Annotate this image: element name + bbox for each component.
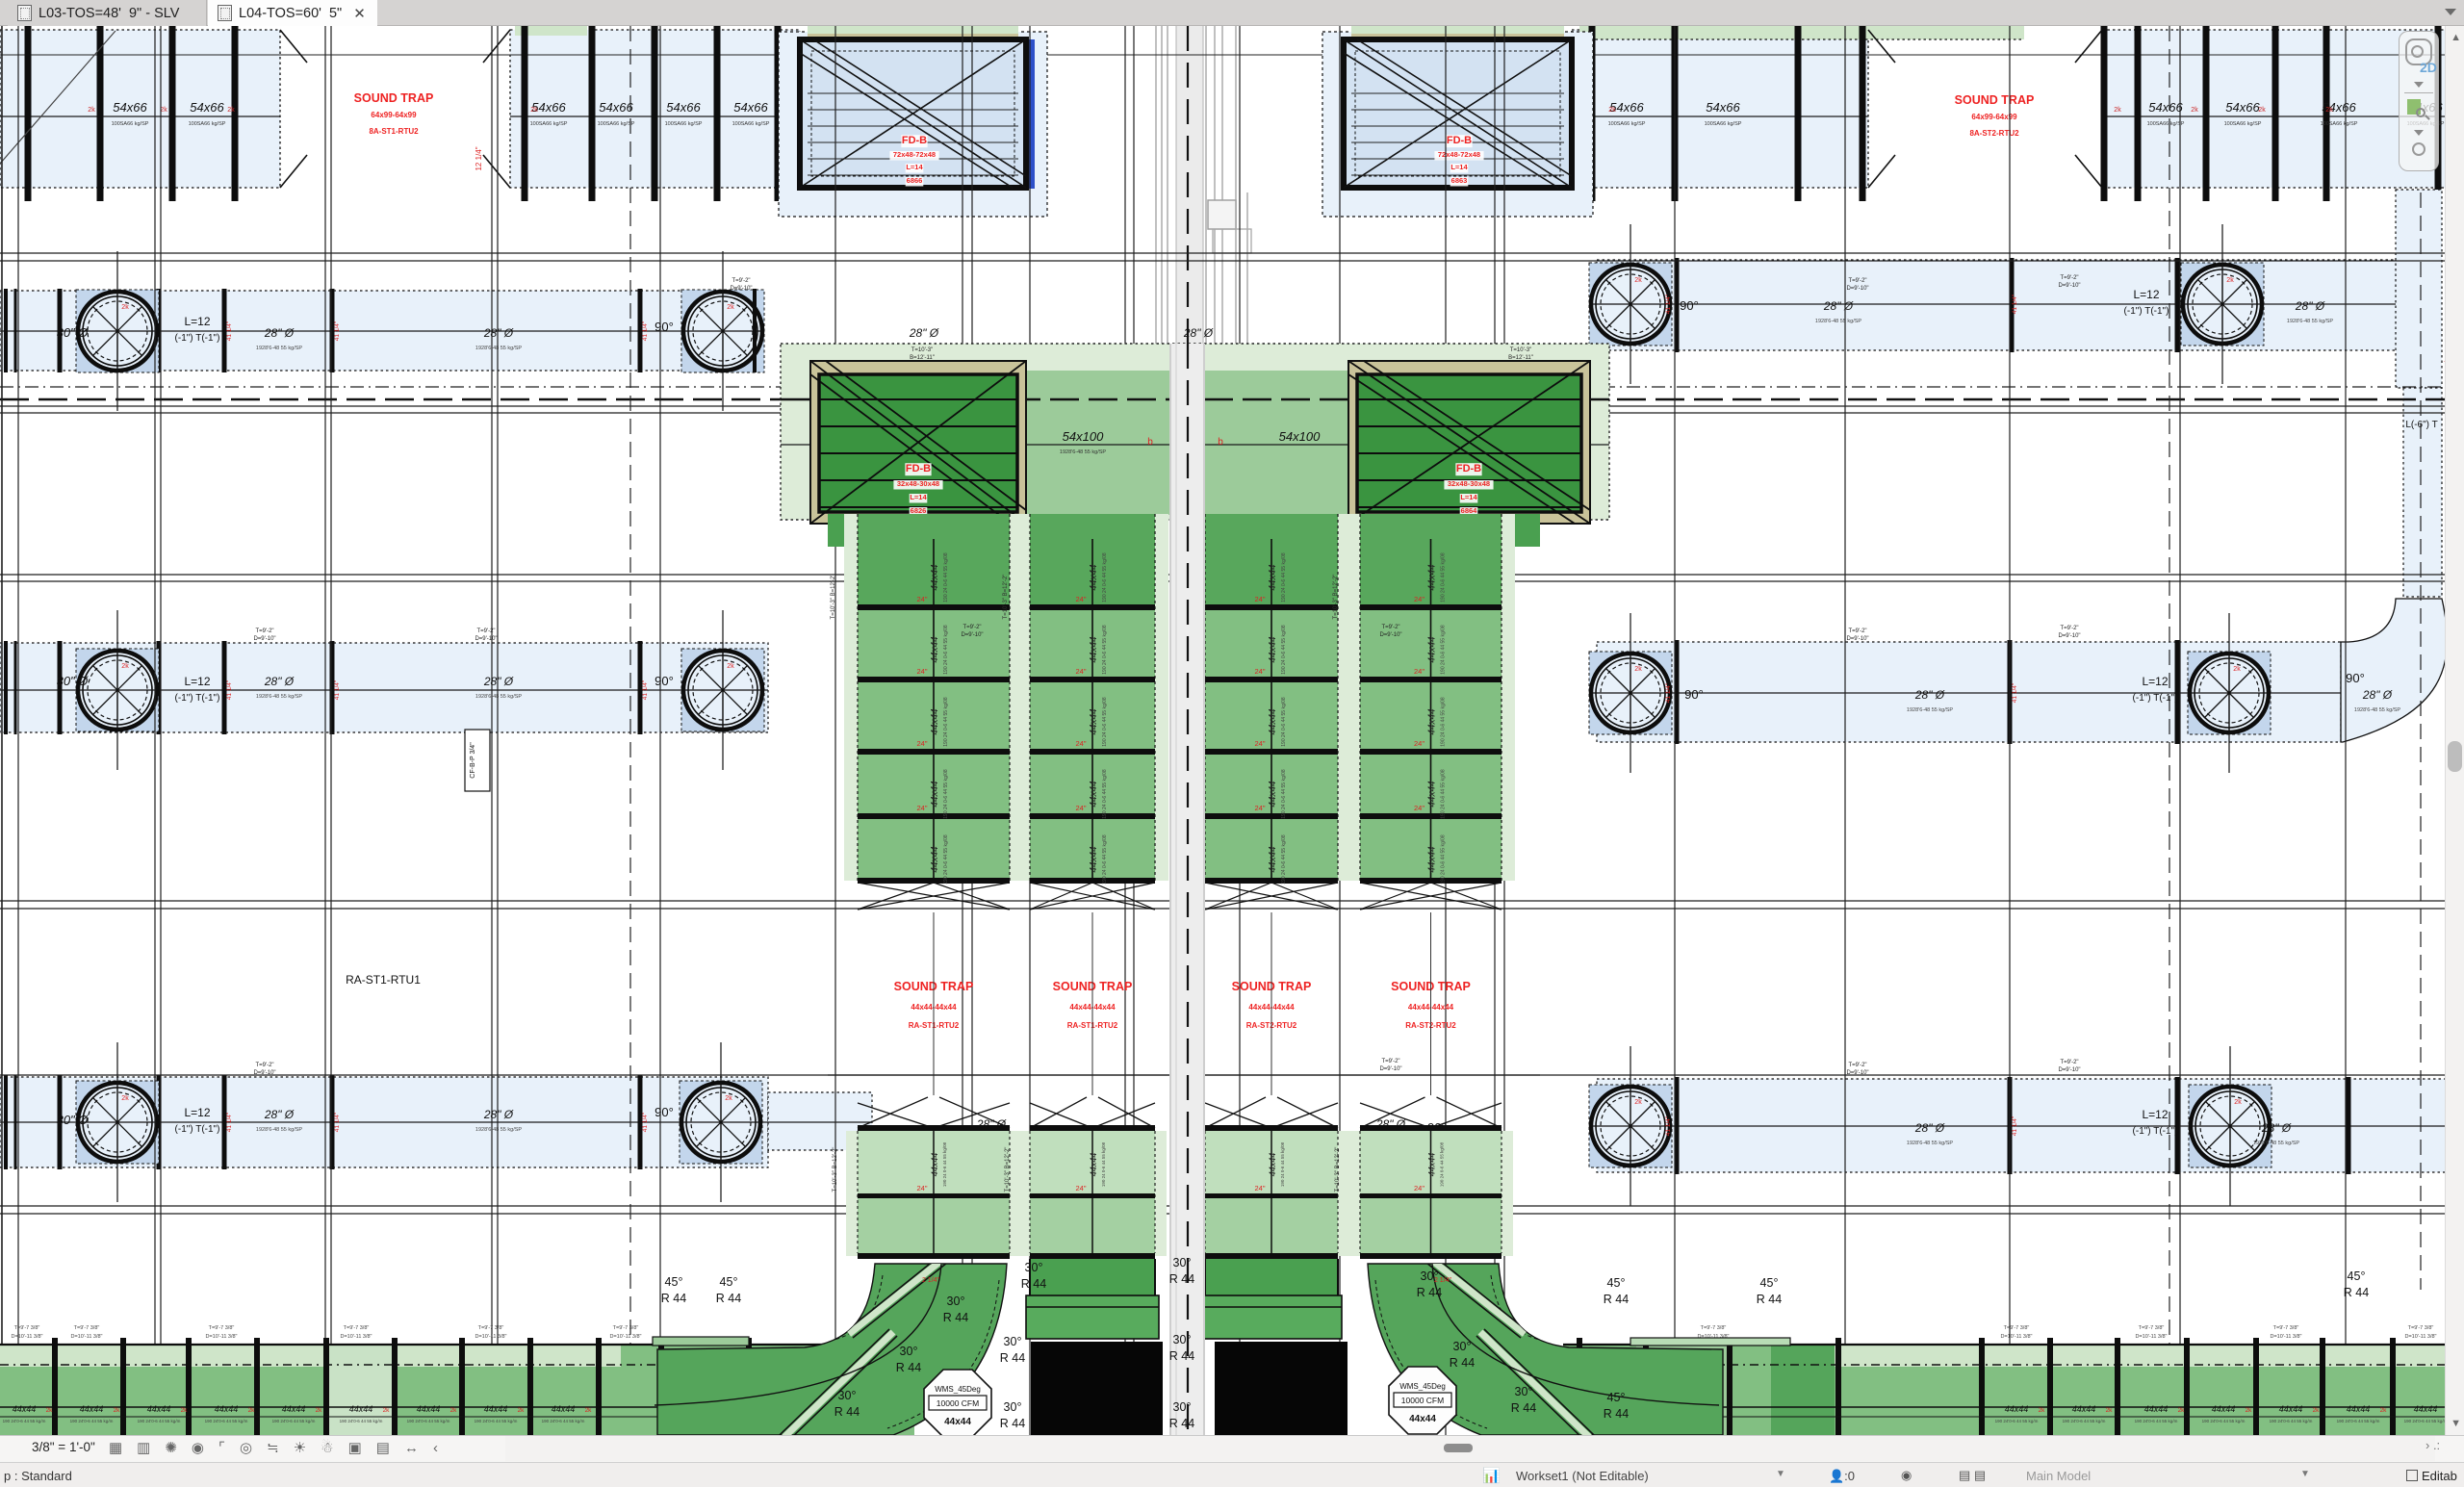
- svg-text:190 24'0-6 44 55 kg/m: 190 24'0-6 44 55 kg/m: [70, 1419, 114, 1423]
- svg-text:24": 24": [1254, 667, 1265, 676]
- svg-text:41 1/4": 41 1/4": [334, 320, 341, 341]
- svg-text:24": 24": [916, 739, 927, 748]
- svg-text:T=9'-2": T=9'-2": [2060, 626, 2078, 631]
- svg-text:190 24'0-6 44 55 kg/m: 190 24'0-6 44 55 kg/m: [2270, 1419, 2313, 1423]
- svg-text:2k: 2k: [450, 1407, 458, 1414]
- svg-text:190 24 0-6 44 55 kg/08: 190 24 0-6 44 55 kg/08: [1102, 697, 1108, 747]
- svg-text:64x99-64x99: 64x99-64x99: [371, 111, 417, 119]
- svg-text:45°: 45°: [1760, 1276, 1779, 1290]
- svg-text:28" Ø: 28" Ø: [264, 675, 295, 688]
- svg-text:10000 CFM: 10000 CFM: [937, 1398, 979, 1408]
- svg-text:30" Ø: 30" Ø: [57, 674, 90, 688]
- svg-text:2k: 2k: [2380, 1407, 2388, 1414]
- svg-text:T=9'-7 3/8": T=9'-7 3/8": [1701, 1325, 1727, 1331]
- svg-text:SOUND TRAP: SOUND TRAP: [1955, 93, 2035, 107]
- svg-text:190 24 0-6 44 55 kg/08: 190 24 0-6 44 55 kg/08: [1280, 1141, 1285, 1187]
- svg-text:D=9'-10": D=9'-10": [730, 286, 752, 292]
- svg-text:D=9'-10": D=9'-10": [961, 632, 983, 638]
- svg-text:44x44: 44x44: [2212, 1404, 2236, 1414]
- svg-text:6863: 6863: [1451, 176, 1468, 185]
- svg-text:1928'6-48 55 kg/SP: 1928'6-48 55 kg/SP: [1907, 707, 1953, 713]
- svg-text:D=10'-11 3/8": D=10'-11 3/8": [11, 1334, 42, 1340]
- svg-text:41 1/4": 41 1/4": [226, 320, 233, 341]
- svg-text:100SA66 kg/SP: 100SA66 kg/SP: [189, 121, 226, 127]
- svg-text:R 44: R 44: [661, 1292, 686, 1305]
- svg-text:44x44: 44x44: [930, 1153, 939, 1177]
- svg-text:RA-ST1-RTU1: RA-ST1-RTU1: [346, 973, 421, 987]
- svg-text:44x44: 44x44: [1427, 708, 1438, 735]
- svg-text:28" Ø: 28" Ø: [2362, 688, 2393, 702]
- svg-text:24": 24": [1254, 1184, 1265, 1192]
- svg-text:D=9'-10": D=9'-10": [1379, 1066, 1401, 1072]
- svg-text:T=9'-2": T=9'-2": [476, 628, 495, 634]
- svg-text:T=9'-2": T=9'-2": [962, 625, 981, 630]
- svg-text:1928'6-48 55 kg/SP: 1928'6-48 55 kg/SP: [475, 346, 522, 351]
- svg-text:28" Ø: 28" Ø: [264, 326, 295, 340]
- svg-text:SOUND TRAP: SOUND TRAP: [354, 91, 434, 105]
- svg-text:41 1/4": 41 1/4": [1665, 294, 1672, 314]
- svg-text:44x44: 44x44: [2005, 1404, 2029, 1414]
- svg-text:24": 24": [1414, 739, 1424, 748]
- svg-text:30°: 30°: [900, 1345, 918, 1358]
- svg-text:2k: 2k: [1608, 107, 1616, 114]
- svg-text:190 24 0-6 44 55 kg/08: 190 24 0-6 44 55 kg/08: [1102, 625, 1108, 675]
- svg-text:45°: 45°: [1607, 1391, 1626, 1404]
- svg-text:L=14: L=14: [1450, 163, 1468, 171]
- svg-text:T=9'-2": T=9'-2": [1848, 1063, 1866, 1068]
- svg-text:24": 24": [916, 804, 927, 812]
- svg-text:2k: 2k: [121, 304, 129, 311]
- svg-text:44x44: 44x44: [282, 1404, 306, 1414]
- svg-text:(-1") T(-1"): (-1") T(-1"): [175, 333, 220, 344]
- svg-text:2k: 2k: [383, 1407, 391, 1414]
- svg-text:B=12'-11": B=12'-11": [1508, 355, 1533, 361]
- svg-text:44x44: 44x44: [1427, 846, 1438, 873]
- svg-text:D=9'-10": D=9'-10": [475, 636, 497, 642]
- svg-text:D=10'-11 3/8": D=10'-11 3/8": [2270, 1334, 2301, 1340]
- svg-text:190 24 0-6 44 55 kg/08: 190 24 0-6 44 55 kg/08: [1441, 625, 1447, 675]
- svg-text:T=9'-2": T=9'-2": [1381, 625, 1399, 630]
- svg-text:41 1/4": 41 1/4": [1665, 1115, 1672, 1136]
- svg-text:T=10'-3" B=12'-2": T=10'-3" B=12'-2": [1335, 1147, 1341, 1192]
- svg-text:190 24 0-6 44 55 kg/08: 190 24 0-6 44 55 kg/08: [943, 697, 949, 747]
- svg-text:41 1/4": 41 1/4": [226, 679, 233, 700]
- svg-text:T=10'-3" B=12'-2": T=10'-3" B=12'-2": [1005, 1147, 1011, 1192]
- svg-text:54x66: 54x66: [599, 100, 633, 115]
- svg-text:190 24 0-6 44 55 kg/08: 190 24 0-6 44 55 kg/08: [1281, 834, 1287, 885]
- svg-text:190 24'0-6 44 55 kg/m: 190 24'0-6 44 55 kg/m: [542, 1419, 585, 1423]
- svg-text:44x44: 44x44: [1089, 1153, 1098, 1177]
- svg-text:28" Ø: 28" Ø: [483, 675, 514, 688]
- svg-text:2k: 2k: [114, 1407, 121, 1414]
- svg-text:32x48-30x48: 32x48-30x48: [1448, 479, 1490, 488]
- svg-text:30°: 30°: [1453, 1340, 1472, 1353]
- svg-text:R 44: R 44: [1021, 1277, 1046, 1291]
- svg-text:190 24 0-6 44 55 kg/08: 190 24 0-6 44 55 kg/08: [1102, 834, 1108, 885]
- svg-text:2k: 2k: [530, 107, 538, 114]
- svg-text:2k: 2k: [2178, 1407, 2186, 1414]
- svg-text:2 1/4": 2 1/4": [922, 1277, 940, 1284]
- svg-text:T=9'-2": T=9'-2": [255, 1063, 273, 1068]
- svg-text:190 24'0-6 44 55 kg/m: 190 24'0-6 44 55 kg/m: [475, 1419, 518, 1423]
- svg-text:90°: 90°: [2346, 671, 2365, 685]
- svg-text:24": 24": [1414, 667, 1424, 676]
- svg-text:D=10'-11 3/8": D=10'-11 3/8": [609, 1334, 641, 1340]
- svg-text:44x44: 44x44: [930, 781, 940, 808]
- svg-text:100SA66 kg/SP: 100SA66 kg/SP: [598, 121, 635, 127]
- svg-text:D=9'-10": D=9'-10": [1846, 286, 1868, 292]
- svg-text:41 1/4": 41 1/4": [2012, 682, 2018, 703]
- svg-text:D=9'-10": D=9'-10": [253, 636, 275, 642]
- svg-text:R 44: R 44: [1511, 1401, 1536, 1415]
- svg-text:b: b: [1218, 437, 1223, 448]
- svg-text:2k: 2k: [2233, 666, 2241, 673]
- svg-text:41 1/4": 41 1/4": [334, 1112, 341, 1132]
- svg-text:190 24 0-6 44 55 kg/08: 190 24 0-6 44 55 kg/08: [1441, 769, 1447, 819]
- svg-text:41 1/4": 41 1/4": [642, 1112, 649, 1132]
- svg-text:2k: 2k: [725, 1095, 732, 1102]
- svg-text:D=9'-10": D=9'-10": [2058, 1067, 2080, 1073]
- svg-text:54x66: 54x66: [733, 100, 768, 115]
- svg-text:24": 24": [1075, 804, 1086, 812]
- svg-text:R 44: R 44: [1417, 1286, 1442, 1299]
- svg-text:24": 24": [1075, 1184, 1086, 1192]
- svg-text:190 24 0-6 44 55 kg/08: 190 24 0-6 44 55 kg/08: [1281, 552, 1287, 602]
- svg-text:T=9'-2": T=9'-2": [1381, 1059, 1399, 1064]
- svg-text:2k: 2k: [121, 1095, 129, 1102]
- svg-text:54x66: 54x66: [2148, 100, 2183, 115]
- svg-text:R 44: R 44: [716, 1292, 741, 1305]
- svg-text:1928'6-48 55 kg/SP: 1928'6-48 55 kg/SP: [2253, 1141, 2299, 1146]
- svg-text:190 24 0-6 44 55 kg/08: 190 24 0-6 44 55 kg/08: [1102, 769, 1108, 819]
- svg-text:190 24'0-6 44 55 kg/m: 190 24'0-6 44 55 kg/m: [2404, 1419, 2448, 1423]
- svg-text:CF-B-P 3/4": CF-B-P 3/4": [470, 742, 476, 779]
- svg-text:24": 24": [1254, 739, 1265, 748]
- svg-text:D=10'-11 3/8": D=10'-11 3/8": [205, 1334, 237, 1340]
- svg-text:1928'6-48 55 kg/SP: 1928'6-48 55 kg/SP: [256, 1127, 302, 1133]
- svg-text:44x44: 44x44: [1268, 846, 1278, 873]
- svg-text:24": 24": [1254, 595, 1265, 603]
- svg-text:30°: 30°: [1025, 1261, 1043, 1274]
- svg-text:190 24 0-6 44 55 kg/08: 190 24 0-6 44 55 kg/08: [943, 834, 949, 885]
- svg-text:190 24 0-6 44 55 kg/08: 190 24 0-6 44 55 kg/08: [943, 552, 949, 602]
- svg-text:44x44: 44x44: [215, 1404, 239, 1414]
- svg-text:2k: 2k: [585, 1407, 593, 1414]
- svg-text:T=9'-7 3/8": T=9'-7 3/8": [478, 1325, 504, 1331]
- svg-text:90°: 90°: [1684, 687, 1704, 702]
- svg-text:190 24 0-6 44 55 kg/08: 190 24 0-6 44 55 kg/08: [1102, 552, 1108, 602]
- svg-text:(-1") T(-1"): (-1") T(-1"): [2133, 693, 2178, 704]
- svg-text:44x44: 44x44: [13, 1404, 37, 1414]
- svg-text:24": 24": [1254, 804, 1265, 812]
- svg-text:T=9'-7 3/8": T=9'-7 3/8": [74, 1325, 100, 1331]
- svg-text:FD-B: FD-B: [1456, 463, 1481, 474]
- svg-text:44x44: 44x44: [2072, 1404, 2096, 1414]
- svg-text:24": 24": [1075, 739, 1086, 748]
- svg-text:44x44: 44x44: [552, 1404, 576, 1414]
- svg-text:100SA66 kg/SP: 100SA66 kg/SP: [732, 121, 770, 127]
- svg-text:24": 24": [1414, 595, 1424, 603]
- svg-text:190 24'0-6 44 55 kg/m: 190 24'0-6 44 55 kg/m: [272, 1419, 316, 1423]
- svg-text:2k: 2k: [88, 107, 95, 114]
- svg-text:30°: 30°: [1173, 1400, 1192, 1414]
- svg-text:190 24 0-6 44 55 kg/08: 190 24 0-6 44 55 kg/08: [943, 625, 949, 675]
- svg-text:44x44: 44x44: [80, 1404, 104, 1414]
- svg-text:190 24 0-6 44 55 kg/08: 190 24 0-6 44 55 kg/08: [942, 1141, 947, 1187]
- svg-text:(-1") T(-1"): (-1") T(-1"): [2124, 306, 2169, 317]
- svg-text:44x44: 44x44: [930, 708, 940, 735]
- svg-text:WMS_45Deg: WMS_45Deg: [1399, 1382, 1446, 1391]
- svg-text:44x44: 44x44: [417, 1404, 441, 1414]
- svg-text:30" Ø: 30" Ø: [57, 325, 90, 340]
- svg-text:28" Ø: 28" Ø: [2261, 1121, 2292, 1135]
- svg-text:54x100: 54x100: [1063, 429, 1104, 444]
- svg-text:(-1") T(-1"): (-1") T(-1"): [175, 1124, 220, 1135]
- svg-text:100SA66 kg/SP: 100SA66 kg/SP: [1608, 121, 1646, 127]
- svg-text:24": 24": [1414, 1184, 1424, 1192]
- svg-text:54x66: 54x66: [190, 100, 224, 115]
- svg-text:41 1/4": 41 1/4": [2012, 294, 2018, 314]
- svg-text:b: b: [1147, 437, 1153, 448]
- svg-text:R 44: R 44: [943, 1311, 968, 1324]
- svg-text:1928'6-48 55 kg/SP: 1928'6-48 55 kg/SP: [2287, 319, 2333, 324]
- svg-text:28" Ø: 28" Ø: [264, 1108, 295, 1121]
- svg-text:190 24'0-6 44 55 kg/m: 190 24'0-6 44 55 kg/m: [2135, 1419, 2178, 1423]
- svg-text:190 24 0-6 44 55 kg/08: 190 24 0-6 44 55 kg/08: [1441, 834, 1447, 885]
- svg-text:100SA66 kg/SP: 100SA66 kg/SP: [2147, 121, 2185, 127]
- svg-text:FD-B: FD-B: [906, 463, 931, 474]
- svg-text:D=10'-11 3/8": D=10'-11 3/8": [340, 1334, 372, 1340]
- svg-text:190 24 0-6 44 55 kg/08: 190 24 0-6 44 55 kg/08: [1441, 697, 1447, 747]
- svg-text:T=10'-3" B=12'-2": T=10'-3" B=12'-2": [1333, 575, 1339, 620]
- svg-text:2k: 2k: [2114, 107, 2121, 114]
- svg-text:T=9'-7 3/8": T=9'-7 3/8": [209, 1325, 235, 1331]
- svg-text:T=10'-3": T=10'-3": [1510, 347, 1531, 353]
- svg-text:28" Ø: 28" Ø: [2295, 299, 2325, 313]
- svg-text:190 24'0-6 44 55 kg/m: 190 24'0-6 44 55 kg/m: [2337, 1419, 2380, 1423]
- svg-text:44x44: 44x44: [1427, 636, 1438, 663]
- svg-text:44x44: 44x44: [1089, 708, 1099, 735]
- svg-text:1928'6-48 55 kg/SP: 1928'6-48 55 kg/SP: [1907, 1141, 1953, 1146]
- svg-text:T=9'-7 3/8": T=9'-7 3/8": [2004, 1325, 2030, 1331]
- svg-text:2k: 2k: [121, 663, 129, 670]
- svg-text:30" Ø: 30" Ø: [57, 1113, 90, 1127]
- svg-text:44x44: 44x44: [1089, 781, 1099, 808]
- svg-text:L=12: L=12: [2133, 288, 2159, 301]
- svg-text:D=10'-11 3/8": D=10'-11 3/8": [2000, 1334, 2032, 1340]
- svg-text:2k: 2k: [727, 304, 734, 311]
- svg-text:100SA66 kg/SP: 100SA66 kg/SP: [1705, 121, 1742, 127]
- svg-text:24": 24": [916, 667, 927, 676]
- svg-text:190 24 0-6 44 55 kg/08: 190 24 0-6 44 55 kg/08: [1441, 552, 1447, 602]
- svg-text:44x44: 44x44: [2279, 1404, 2303, 1414]
- svg-text:30°: 30°: [1004, 1335, 1022, 1348]
- svg-text:44x44: 44x44: [1268, 636, 1278, 663]
- svg-text:41 1/4": 41 1/4": [642, 320, 649, 341]
- svg-text:1928'6-48 55 kg/SP: 1928'6-48 55 kg/SP: [475, 694, 522, 700]
- svg-text:T=10'-3" B=12'-2": T=10'-3" B=12'-2": [1003, 575, 1009, 620]
- svg-text:45°: 45°: [1607, 1276, 1626, 1290]
- svg-text:64x99-64x99: 64x99-64x99: [1971, 113, 2017, 121]
- svg-text:44x44: 44x44: [944, 1417, 971, 1427]
- svg-text:(-1") T(-1"): (-1") T(-1"): [2133, 1126, 2178, 1137]
- svg-text:44x44: 44x44: [1427, 1153, 1437, 1177]
- svg-text:D=10'-11 3/8": D=10'-11 3/8": [2135, 1334, 2167, 1340]
- svg-text:32x48-30x48: 32x48-30x48: [897, 479, 939, 488]
- svg-text:2k: 2k: [1634, 1099, 1642, 1106]
- svg-text:100SA66 kg/SP: 100SA66 kg/SP: [2321, 121, 2358, 127]
- svg-text:72x48-72x48: 72x48-72x48: [893, 150, 936, 159]
- svg-text:190 24 0-6 44 55 kg/08: 190 24 0-6 44 55 kg/08: [1281, 697, 1287, 747]
- svg-text:44x44: 44x44: [349, 1404, 373, 1414]
- svg-text:1928'6-48 55 kg/SP: 1928'6-48 55 kg/SP: [256, 694, 302, 700]
- svg-text:1928'6-48 55 kg/SP: 1928'6-48 55 kg/SP: [1060, 449, 1106, 455]
- svg-text:190 24 0-6 44 55 kg/08: 190 24 0-6 44 55 kg/08: [1281, 625, 1287, 675]
- svg-text:L=12: L=12: [184, 1106, 210, 1119]
- svg-text:T=9'-2": T=9'-2": [2060, 275, 2078, 281]
- svg-text:L=14: L=14: [906, 163, 923, 171]
- svg-text:28" Ø: 28" Ø: [909, 326, 939, 340]
- svg-text:T=9'-7 3/8": T=9'-7 3/8": [2273, 1325, 2299, 1331]
- svg-text:54x66: 54x66: [2225, 100, 2260, 115]
- svg-text:54x66: 54x66: [113, 100, 147, 115]
- svg-text:2k: 2k: [2313, 1407, 2321, 1414]
- svg-text:190 24 0-6 44 55 kg/08: 190 24 0-6 44 55 kg/08: [1440, 1141, 1445, 1187]
- svg-text:T=9'-7 3/8": T=9'-7 3/8": [14, 1325, 40, 1331]
- svg-text:1928'6-48 55 kg/SP: 1928'6-48 55 kg/SP: [475, 1127, 522, 1133]
- svg-text:2k: 2k: [2226, 277, 2234, 284]
- svg-text:2k: 2k: [2258, 107, 2266, 114]
- svg-text:D=9'-10": D=9'-10": [2058, 633, 2080, 639]
- svg-text:T=9'-2": T=9'-2": [255, 628, 273, 634]
- svg-text:90°: 90°: [1680, 298, 1699, 313]
- svg-text:190 24'0-6 44 55 kg/m: 190 24'0-6 44 55 kg/m: [340, 1419, 383, 1423]
- svg-text:L=12: L=12: [2142, 675, 2168, 688]
- svg-text:R 44: R 44: [834, 1405, 860, 1419]
- svg-text:90°: 90°: [654, 674, 674, 688]
- svg-text:24": 24": [1414, 804, 1424, 812]
- svg-text:R 44: R 44: [896, 1361, 921, 1374]
- svg-text:R 44: R 44: [1169, 1272, 1194, 1286]
- svg-text:44x44: 44x44: [930, 636, 940, 663]
- svg-text:T=9'-7 3/8": T=9'-7 3/8": [613, 1325, 639, 1331]
- svg-text:44x44: 44x44: [484, 1404, 508, 1414]
- svg-text:R 44: R 44: [1000, 1417, 1025, 1430]
- svg-text:2k: 2k: [2039, 1407, 2046, 1414]
- svg-text:R 44: R 44: [1169, 1417, 1194, 1430]
- svg-text:30°: 30°: [947, 1295, 965, 1308]
- svg-text:90°: 90°: [654, 320, 674, 334]
- svg-text:R 44: R 44: [1604, 1407, 1629, 1421]
- svg-text:30°: 30°: [1173, 1333, 1192, 1346]
- svg-text:2 1/4": 2 1/4": [1434, 1277, 1452, 1284]
- svg-text:190 24'0-6 44 55 kg/m: 190 24'0-6 44 55 kg/m: [2202, 1419, 2246, 1423]
- svg-text:2k: 2k: [727, 663, 734, 670]
- svg-text:190 24'0-6 44 55 kg/m: 190 24'0-6 44 55 kg/m: [205, 1419, 248, 1423]
- svg-text:1928'6-48 55 kg/SP: 1928'6-48 55 kg/SP: [1815, 319, 1861, 324]
- svg-text:R 44: R 44: [1604, 1293, 1629, 1306]
- svg-text:24": 24": [1075, 667, 1086, 676]
- svg-text:190 24 0-6 44 55 kg/08: 190 24 0-6 44 55 kg/08: [943, 769, 949, 819]
- svg-text:R 44: R 44: [2344, 1286, 2369, 1299]
- svg-text:T=9'-7 3/8": T=9'-7 3/8": [2139, 1325, 2165, 1331]
- svg-text:44x44: 44x44: [1427, 781, 1438, 808]
- svg-text:12 1/4": 12 1/4": [475, 146, 483, 170]
- svg-text:L=14: L=14: [910, 493, 927, 501]
- svg-text:28" Ø: 28" Ø: [1914, 1121, 1945, 1135]
- svg-text:T=10'-3" B=12'-2": T=10'-3" B=12'-2": [831, 575, 836, 620]
- svg-text:T=9'-2": T=9'-2": [1848, 278, 1866, 284]
- svg-text:D=9'-10": D=9'-10": [1379, 632, 1401, 638]
- svg-text:2k: 2k: [518, 1407, 526, 1414]
- svg-text:L=12: L=12: [184, 315, 210, 328]
- svg-text:190 24'0-6 44 55 kg/m: 190 24'0-6 44 55 kg/m: [3, 1419, 46, 1423]
- svg-text:D=9'-10": D=9'-10": [253, 1070, 275, 1076]
- svg-text:2k: 2k: [2106, 1407, 2114, 1414]
- svg-text:44x44: 44x44: [2144, 1404, 2169, 1414]
- svg-text:24": 24": [916, 595, 927, 603]
- svg-text:54x66: 54x66: [1706, 100, 1740, 115]
- svg-text:30°: 30°: [1173, 1256, 1192, 1269]
- svg-text:41 1/4": 41 1/4": [1665, 682, 1672, 703]
- svg-text:41 1/4": 41 1/4": [334, 679, 341, 700]
- svg-text:D=9'-10": D=9'-10": [1846, 636, 1868, 642]
- svg-text:6826: 6826: [911, 506, 927, 515]
- svg-text:2k: 2k: [2191, 107, 2198, 114]
- svg-text:41 1/4": 41 1/4": [642, 679, 649, 700]
- svg-text:D=10'-11 3/8": D=10'-11 3/8": [2404, 1334, 2436, 1340]
- svg-text:T=10'-3": T=10'-3": [911, 347, 933, 353]
- svg-text:28" Ø: 28" Ø: [483, 1108, 514, 1121]
- svg-text:44x44: 44x44: [1089, 564, 1099, 591]
- svg-text:190 24'0-6 44 55 kg/m: 190 24'0-6 44 55 kg/m: [407, 1419, 450, 1423]
- svg-text:T=9'-7 3/8": T=9'-7 3/8": [344, 1325, 370, 1331]
- svg-text:2k: 2k: [2325, 107, 2333, 114]
- svg-text:R 44: R 44: [1757, 1293, 1782, 1306]
- svg-text:44x44: 44x44: [1089, 846, 1099, 873]
- svg-text:72x48-72x48: 72x48-72x48: [1438, 150, 1480, 159]
- svg-text:44x44: 44x44: [1409, 1414, 1436, 1424]
- svg-text:54x66: 54x66: [666, 100, 701, 115]
- svg-text:44x44: 44x44: [1268, 564, 1278, 591]
- svg-text:100SA66 kg/SP: 100SA66 kg/SP: [2224, 121, 2262, 127]
- svg-text:D=9'-10": D=9'-10": [1846, 1070, 1868, 1076]
- svg-text:45°: 45°: [665, 1275, 683, 1289]
- svg-text:WMS_45Deg: WMS_45Deg: [935, 1385, 981, 1394]
- svg-text:190 24'0-6 44 55 kg/m: 190 24'0-6 44 55 kg/m: [138, 1419, 181, 1423]
- svg-text:28" Ø: 28" Ø: [1823, 299, 1854, 313]
- svg-text:2k: 2k: [316, 1407, 323, 1414]
- svg-text:6866: 6866: [907, 176, 923, 185]
- svg-text:L=12: L=12: [184, 675, 210, 688]
- svg-text:30°: 30°: [1515, 1385, 1533, 1398]
- svg-text:30°: 30°: [838, 1389, 857, 1402]
- svg-text:L(-6") T: L(-6") T: [2405, 420, 2437, 430]
- svg-text:44x44: 44x44: [1427, 564, 1438, 591]
- svg-text:2k: 2k: [181, 1407, 189, 1414]
- svg-text:44x44: 44x44: [930, 846, 940, 873]
- svg-text:R 44: R 44: [1169, 1349, 1194, 1363]
- svg-text:190 24 0-6 44 55 kg/08: 190 24 0-6 44 55 kg/08: [1101, 1141, 1106, 1187]
- svg-text:FD-B: FD-B: [1447, 135, 1472, 146]
- svg-text:D=10'-11 3/8": D=10'-11 3/8": [70, 1334, 102, 1340]
- svg-text:2k: 2k: [2246, 1407, 2253, 1414]
- svg-text:2k: 2k: [46, 1407, 54, 1414]
- svg-text:44x44: 44x44: [1089, 636, 1099, 663]
- svg-text:2k: 2k: [248, 1407, 256, 1414]
- svg-text:24": 24": [916, 1184, 927, 1192]
- svg-text:45°: 45°: [720, 1275, 738, 1289]
